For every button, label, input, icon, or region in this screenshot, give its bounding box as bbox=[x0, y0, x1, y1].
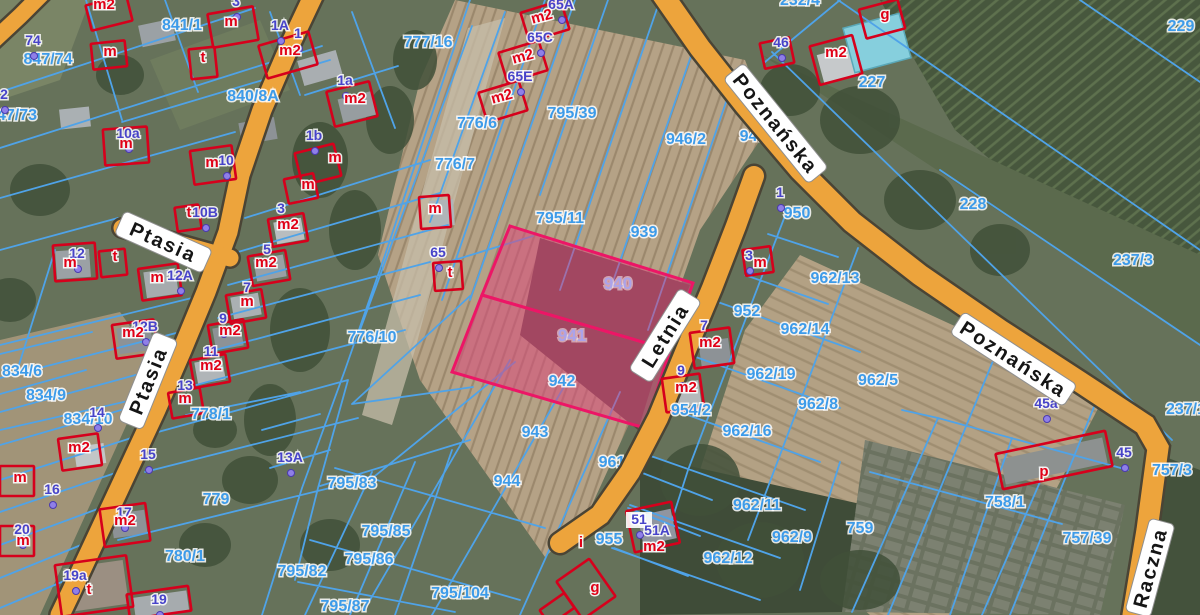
parcel-label: 795/104 bbox=[431, 585, 489, 602]
building-type-label: m2 bbox=[825, 44, 847, 61]
building-type-label: m2 bbox=[219, 322, 241, 339]
parcel-label: 795/83 bbox=[328, 475, 377, 492]
address-point-icon bbox=[157, 612, 164, 615]
address-point-icon bbox=[31, 53, 38, 60]
address-point-icon bbox=[436, 265, 443, 272]
parcel-label: 778/1 bbox=[191, 406, 231, 423]
building-type-label: p bbox=[1039, 463, 1048, 480]
parcel-label: 952 bbox=[734, 303, 761, 320]
parcel-label: 954/2 bbox=[671, 402, 711, 419]
parcel-label: 228 bbox=[960, 196, 987, 213]
building-type-label: t bbox=[448, 264, 453, 281]
parcel-label: 795/85 bbox=[362, 523, 411, 540]
building-type-label: m2 bbox=[122, 324, 144, 341]
building-type-label: m bbox=[178, 390, 191, 407]
address-point-icon bbox=[73, 588, 80, 595]
parcel-label: 227 bbox=[859, 74, 886, 91]
address-point-icon bbox=[518, 89, 525, 96]
address-point-icon bbox=[224, 173, 231, 180]
parcel-label: 962/19 bbox=[747, 366, 796, 383]
parcel-label: 950 bbox=[784, 205, 811, 222]
building-type-label: m bbox=[753, 254, 766, 271]
parcel-label: 232/4 bbox=[780, 0, 820, 9]
address-point-icon bbox=[538, 50, 545, 57]
house-number-label: 51A bbox=[644, 522, 670, 538]
parcel-label: 776/10 bbox=[348, 329, 397, 346]
building-type-label: g bbox=[590, 579, 599, 596]
address-point-icon bbox=[203, 225, 210, 232]
building-type-label: m bbox=[63, 254, 76, 271]
address-point-icon bbox=[312, 148, 319, 155]
building-type-label: m2 bbox=[68, 439, 90, 456]
house-number-label: 1A bbox=[271, 17, 289, 33]
parcel-label: 229 bbox=[1168, 18, 1195, 35]
house-number-label: 65 bbox=[430, 244, 446, 260]
house-number-label: 1 bbox=[294, 25, 302, 41]
building-type-label: m2 bbox=[277, 216, 299, 233]
house-number-label: 65A bbox=[548, 0, 574, 12]
building-type-label: t bbox=[113, 248, 118, 265]
parcel-label: 834/10 bbox=[64, 411, 113, 428]
parcel-label: 962/11 bbox=[733, 497, 781, 514]
building-type-label: m bbox=[16, 532, 29, 549]
house-number-label: 3 bbox=[745, 247, 753, 263]
building-type-label: m bbox=[224, 13, 237, 30]
building-type-label: i bbox=[579, 534, 583, 551]
address-point-icon bbox=[178, 288, 185, 295]
parcel-label: 237/3 bbox=[1113, 252, 1153, 269]
building-type-label: m bbox=[428, 200, 441, 217]
parcel-label: 834/6 bbox=[2, 363, 42, 380]
building-type-label: m bbox=[205, 154, 218, 171]
parcel-label: 758/1 bbox=[985, 494, 1025, 511]
building-type-label: m bbox=[328, 149, 341, 166]
house-number-label: 45 bbox=[1116, 444, 1132, 460]
parcel-label: 795/11 bbox=[536, 210, 584, 227]
address-point-icon bbox=[1122, 465, 1129, 472]
address-point-icon bbox=[779, 55, 786, 62]
house-number-label: 3 bbox=[232, 0, 240, 9]
parcel-label: 962/13 bbox=[811, 270, 860, 287]
map-viewport[interactable]: 947961 841/1847/7447/73777/16840/8A776/6… bbox=[0, 0, 1200, 615]
parcel-label: 962/16 bbox=[723, 423, 772, 440]
building-type-label: m2 bbox=[699, 334, 721, 351]
parcel-label: 840/8A bbox=[227, 88, 279, 105]
building-type-label: m2 bbox=[200, 357, 222, 374]
building-type-label: m bbox=[240, 293, 253, 310]
house-number-label: 16 bbox=[44, 481, 60, 497]
house-number-label: 15 bbox=[140, 446, 156, 462]
parcel-label: 962/14 bbox=[781, 321, 830, 338]
building-type-label: m2 bbox=[114, 512, 136, 529]
address-point-icon bbox=[559, 17, 566, 24]
house-number-label: 12A bbox=[167, 267, 193, 283]
parcel-label: 955 bbox=[596, 531, 623, 548]
house-number-label: 1a bbox=[337, 72, 353, 88]
house-number-label: 65C bbox=[527, 29, 553, 45]
building-type-label: t bbox=[201, 49, 206, 66]
house-number-label: 14 bbox=[89, 404, 105, 420]
parcel-label: 946/2 bbox=[666, 131, 706, 148]
building-type-label: m2 bbox=[93, 0, 115, 13]
house-number-label: 7 bbox=[700, 317, 708, 333]
parcel-label: 795/87 bbox=[321, 598, 370, 615]
parcel-label: 944 bbox=[494, 473, 521, 490]
house-number-label: 74 bbox=[25, 32, 41, 48]
parcel-label: 795/39 bbox=[548, 105, 597, 122]
building-type-label: m bbox=[150, 269, 163, 286]
parcel-label: 776/7 bbox=[435, 156, 475, 173]
address-point-icon bbox=[2, 107, 9, 114]
house-number-label: 10B bbox=[192, 204, 218, 220]
parcel-label: 777/16 bbox=[404, 34, 453, 51]
address-point-icon bbox=[288, 470, 295, 477]
building-type-label: m bbox=[119, 135, 132, 152]
parcel-label: 943 bbox=[522, 424, 549, 441]
house-number-label: 19a bbox=[63, 567, 87, 583]
building-type-label: m2 bbox=[344, 90, 366, 107]
house-number-label: 10 bbox=[218, 152, 234, 168]
building-type-label: t bbox=[87, 581, 92, 598]
address-point-icon bbox=[146, 467, 153, 474]
building-type-label: m2 bbox=[643, 538, 665, 555]
parcel-label: 834/9 bbox=[26, 387, 66, 404]
building-type-label: t bbox=[187, 204, 192, 221]
selected-parcel-label: 941 bbox=[558, 326, 586, 345]
house-number-label: 19 bbox=[151, 591, 167, 607]
address-point-icon bbox=[95, 425, 102, 432]
house-number-label: 3 bbox=[277, 200, 285, 216]
house-number-label: 65E bbox=[508, 68, 533, 84]
building-type-label: m2 bbox=[675, 379, 697, 396]
parcel-label: 795/86 bbox=[345, 551, 394, 568]
building-type-label: m2 bbox=[279, 42, 301, 59]
building-type-label: m bbox=[301, 176, 314, 193]
parcel-label: 841/1 bbox=[162, 17, 202, 34]
parcel-label: 759 bbox=[847, 520, 874, 537]
address-point-icon bbox=[1044, 416, 1051, 423]
building-type-label: m bbox=[103, 43, 116, 60]
parcel-label: 962/12 bbox=[704, 550, 753, 567]
house-number-label: 13A bbox=[277, 449, 303, 465]
parcel-label: 757/3 bbox=[1152, 462, 1192, 479]
parcel-label: 962/9 bbox=[772, 529, 812, 546]
parcel-label: 237/1 bbox=[1166, 401, 1200, 418]
cadastral-map[interactable]: 947961 841/1847/7447/73777/16840/8A776/6… bbox=[0, 0, 1200, 615]
address-point-icon bbox=[50, 502, 57, 509]
selected-parcel-label: 940 bbox=[604, 274, 632, 293]
house-number-label: 1 bbox=[776, 184, 784, 200]
parcel-label: 942 bbox=[549, 373, 576, 390]
parcel-label: 939 bbox=[631, 224, 658, 241]
parcel-label: 795/82 bbox=[278, 563, 327, 580]
address-point-icon bbox=[778, 205, 785, 212]
house-number-label: 1b bbox=[306, 127, 322, 143]
parcel-label: 962/5 bbox=[858, 372, 898, 389]
parcel-label: 757/39 bbox=[1063, 530, 1112, 547]
house-number-label: 2 bbox=[0, 86, 8, 102]
building-type-label: m bbox=[13, 469, 26, 486]
parcel-label: 962/8 bbox=[798, 396, 838, 413]
parcel-label: 780/1 bbox=[165, 548, 205, 565]
parcel-label: 776/6 bbox=[457, 115, 497, 132]
building-type-label: m2 bbox=[255, 254, 277, 271]
house-number-label: 46 bbox=[773, 34, 789, 50]
house-number-label: 9 bbox=[677, 362, 685, 378]
building-type-label: g bbox=[880, 6, 889, 23]
parcel-label: 779 bbox=[203, 491, 230, 508]
